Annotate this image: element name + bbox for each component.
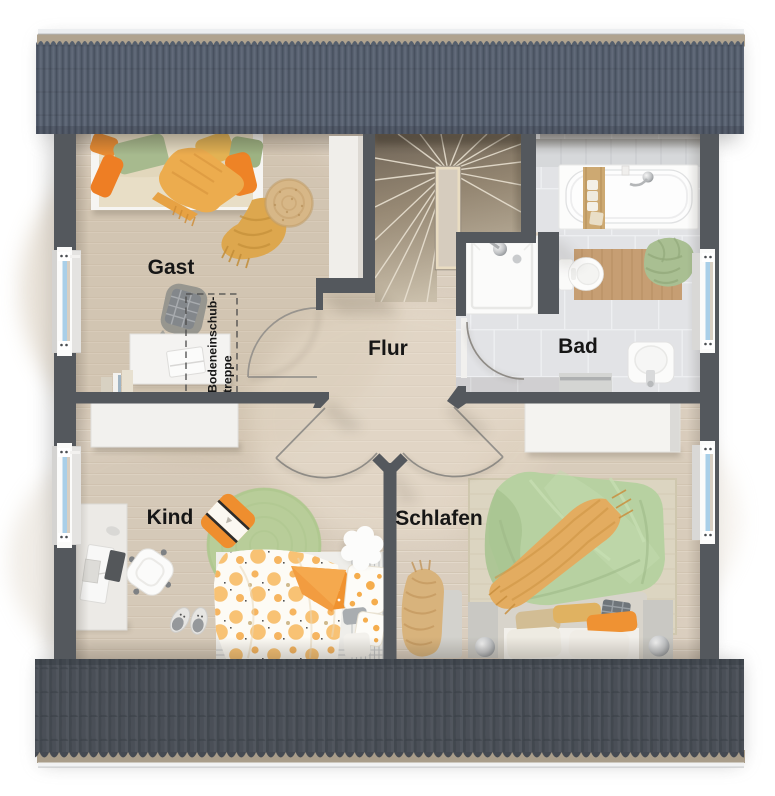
svg-text:Bad: Bad <box>558 335 598 358</box>
svg-text:Bodeneinschub-: Bodeneinschub- <box>206 297 220 393</box>
svg-text:Schlafen: Schlafen <box>395 507 483 530</box>
svg-text:Gast: Gast <box>148 256 195 279</box>
svg-text:treppe: treppe <box>221 355 235 393</box>
svg-text:Flur: Flur <box>368 337 408 360</box>
svg-text:Kind: Kind <box>147 506 194 529</box>
